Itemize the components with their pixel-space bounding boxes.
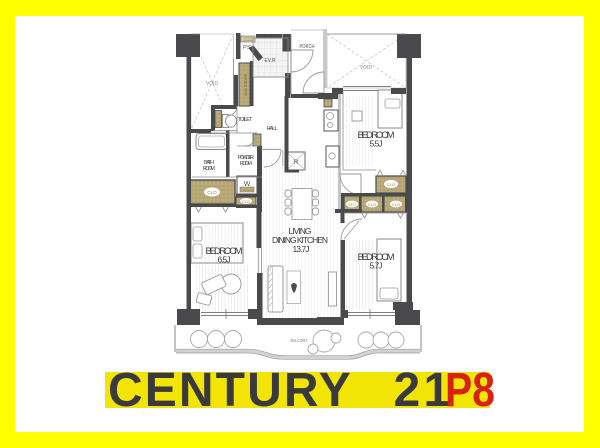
svg-text:6.5J: 6.5J: [218, 255, 231, 265]
svg-text:EV.R: EV.R: [265, 58, 276, 64]
svg-text:CLO: CLO: [387, 182, 395, 187]
svg-text:5.7J: 5.7J: [370, 261, 383, 271]
svg-text:ROOM: ROOM: [240, 161, 252, 167]
svg-text:HALL: HALL: [267, 126, 278, 132]
svg-text:ROOM: ROOM: [203, 166, 215, 172]
svg-text:TOILET: TOILET: [238, 117, 254, 123]
svg-text:PORCH: PORCH: [300, 44, 315, 50]
svg-text:13.7J: 13.7J: [293, 244, 310, 254]
svg-text:BALCONY: BALCONY: [291, 338, 309, 344]
svg-text:STO: STO: [348, 203, 356, 207]
svg-text:R: R: [294, 159, 299, 166]
svg-text:CLO: CLO: [242, 200, 250, 204]
svg-text:SHOES BOX: SHOES BOX: [244, 74, 248, 97]
svg-text:5.5J: 5.5J: [370, 139, 383, 149]
svg-text:VOID: VOID: [360, 65, 372, 71]
svg-text:CLO: CLO: [392, 203, 400, 207]
svg-text:CLO: CLO: [368, 203, 376, 207]
svg-text:VOID: VOID: [206, 81, 218, 87]
svg-text:CLO: CLO: [207, 190, 217, 195]
